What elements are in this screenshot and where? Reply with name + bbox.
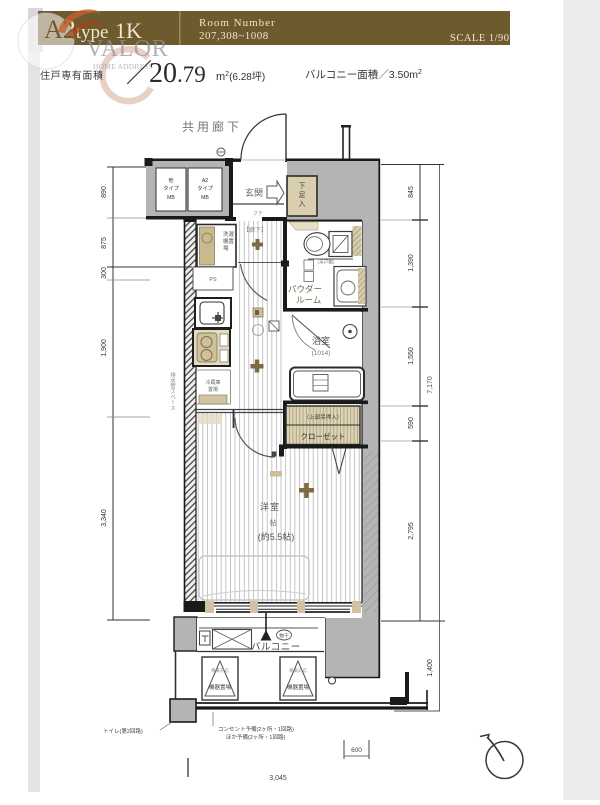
svg-text:バルコニー面積／3.50m2: バルコニー面積／3.50m2 [305,68,422,81]
svg-text:排水管スペース: 排水管スペース [169,371,176,411]
svg-text:ルーム: ルーム [296,295,321,305]
svg-text:m2(6.28坪): m2(6.28坪) [216,70,265,83]
svg-text:1,550: 1,550 [408,347,415,365]
svg-text:(1014): (1014) [312,350,331,357]
svg-text:置場: 置場 [208,386,218,393]
svg-text:300: 300 [101,267,108,279]
svg-text:冷蔵庫: 冷蔵庫 [205,379,220,386]
svg-text:MB: MB [167,195,175,201]
svg-text:入: 入 [299,200,306,208]
svg-text:足: 足 [299,191,306,199]
svg-text:トイレ(第2回路): トイレ(第2回路) [103,727,143,735]
svg-text:共用廊下: 共用廊下 [182,119,242,134]
svg-text:機器置場: 機器置場 [209,683,232,691]
svg-text:他: 他 [168,176,173,184]
svg-text:（上部吊押入）: （上部吊押入） [304,413,343,421]
svg-text:20.79: 20.79 [149,58,206,89]
svg-text:機置: 機置 [223,237,235,245]
svg-text:2,795: 2,795 [408,522,415,540]
svg-text:ほか予備(2ヶ所・1回路): ほか予備(2ヶ所・1回路) [226,733,285,741]
svg-text:将来対応: 将来対応 [211,667,229,674]
svg-text:住戸専有面積: 住戸専有面積 [40,69,104,82]
svg-text:845: 845 [408,186,415,198]
svg-text:1,390: 1,390 [408,254,415,272]
svg-text:タイプ: タイプ [163,184,179,192]
svg-text:玄関: 玄関 [245,187,263,198]
svg-text:3,340: 3,340 [101,509,108,527]
svg-text:洗濯: 洗濯 [223,230,235,238]
svg-text:パウダー: パウダー [288,284,322,294]
svg-text:7,170: 7,170 [427,376,434,394]
svg-text:207,308~1008: 207,308~1008 [199,30,269,42]
svg-text:MB: MB [201,195,209,201]
svg-text:場: 場 [223,244,229,252]
svg-text:590: 590 [408,417,415,429]
svg-text:PS: PS [209,277,217,283]
svg-text:890: 890 [101,186,108,198]
svg-text:下: 下 [299,182,306,190]
svg-text:クローゼット: クローゼット [301,431,346,441]
svg-text:1,400: 1,400 [427,659,434,677]
svg-text:3,045: 3,045 [269,775,287,782]
svg-text:875: 875 [101,237,108,249]
svg-text:1,900: 1,900 [101,339,108,357]
svg-text:A2: A2 [202,178,208,184]
svg-text:将来対応: 将来対応 [289,667,307,674]
svg-text:帖: 帖 [270,518,277,527]
svg-text:物干: 物干 [279,633,289,640]
svg-text:【廊下】: 【廊下】 [243,226,267,234]
svg-text:(約5.5帖): (約5.5帖) [258,531,295,542]
svg-text:タイプ: タイプ [197,184,213,192]
svg-text:（吊戸棚）: （吊戸棚） [315,259,338,266]
svg-text:グチ: グチ [253,210,263,217]
svg-text:SCALE 1/90: SCALE 1/90 [450,33,510,44]
svg-text:コンセント予備(2ヶ所・1回路): コンセント予備(2ヶ所・1回路) [218,725,294,733]
svg-text:機器置場: 機器置場 [287,683,310,691]
svg-text:洋室: 洋室 [260,501,280,512]
svg-text:浴室: 浴室 [312,335,330,346]
svg-text:Room Number: Room Number [199,17,276,29]
svg-text:バルコニー: バルコニー [251,642,301,653]
svg-text:600: 600 [351,747,362,754]
